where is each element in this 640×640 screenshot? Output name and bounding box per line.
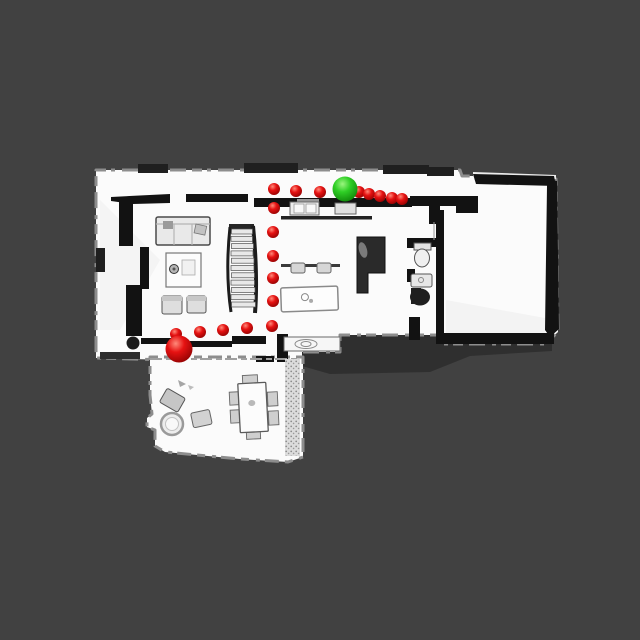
waypoint-marker: [290, 185, 302, 197]
stair-tread: [232, 229, 253, 234]
scene-viewport[interactable]: [0, 0, 640, 640]
scan-noise: [100, 352, 140, 359]
waypoint-marker: [241, 322, 253, 334]
scan-noise: [244, 163, 298, 173]
sink-basin: [306, 204, 316, 213]
scan-speckle-band: [285, 359, 300, 456]
wall-segment: [436, 210, 444, 335]
chair-back: [162, 296, 182, 301]
stair-tread: [232, 302, 256, 307]
round-rug-inner: [166, 418, 179, 431]
waypoint-marker: [374, 190, 386, 202]
kitchen-island: [281, 286, 339, 312]
dining-chair: [230, 410, 240, 423]
waypoint-marker: [217, 324, 229, 336]
scan-noise: [96, 248, 105, 272]
wall-post: [127, 337, 140, 350]
dining-chair: [229, 392, 239, 405]
waypoint-marker: [314, 186, 326, 198]
waypoint-marker: [267, 272, 279, 284]
waypoint-marker: [268, 202, 280, 214]
stool: [317, 263, 331, 273]
stairs: [228, 224, 256, 313]
stool: [291, 263, 305, 273]
dining-table: [238, 382, 269, 432]
dining-chair: [268, 411, 279, 426]
stool: [191, 409, 213, 428]
stair-tread: [231, 251, 253, 256]
toilet: [415, 249, 430, 267]
waypoint-marker: [267, 226, 279, 238]
waypoint-marker: [396, 193, 408, 205]
bathroom-shadow: [410, 289, 430, 306]
stair-tread: [231, 295, 255, 300]
stair-treads: [231, 229, 256, 307]
wall-segment: [119, 200, 133, 246]
stair-tread: [232, 244, 254, 249]
table-tray: [182, 260, 195, 275]
sink-basin: [294, 204, 304, 213]
wall-segment: [232, 336, 266, 344]
wall-segment: [545, 179, 559, 337]
cabinet-top: [284, 337, 340, 351]
lower-room-floor: [147, 357, 303, 462]
stove: [335, 203, 356, 214]
stair-tread: [232, 287, 256, 292]
wall-segment: [473, 174, 556, 186]
waypoint-marker: [267, 250, 279, 262]
stair-tread: [231, 266, 254, 271]
bowl-center: [173, 268, 176, 271]
stair-tread: [232, 258, 255, 263]
wall-post: [409, 317, 420, 340]
island-top: [281, 286, 339, 312]
waypoint-marker: [363, 188, 375, 200]
sofa-pillow: [194, 224, 207, 235]
waypoint-marker: [266, 320, 278, 332]
sofa-pillow: [163, 221, 173, 229]
stair-tread: [231, 280, 255, 285]
scan-noise: [427, 167, 454, 176]
scan-noise: [383, 165, 429, 174]
wall-segment: [126, 285, 142, 336]
scene-canvas[interactable]: [0, 0, 640, 640]
waypoint-marker: [267, 295, 279, 307]
chair-back: [187, 296, 206, 301]
stair-tread: [231, 236, 253, 241]
goal-marker: [333, 177, 358, 202]
waypoint-marker: [268, 183, 280, 195]
dining-chair: [267, 392, 278, 407]
wall-segment: [436, 333, 554, 344]
console-cabinet: [284, 337, 340, 351]
waypoint-marker: [194, 326, 206, 338]
wall-segment: [186, 194, 248, 202]
counter-edge: [281, 216, 372, 220]
wall-segment: [456, 201, 478, 213]
stair-tread: [232, 273, 255, 278]
wall-segment: [140, 247, 149, 289]
bathroom-sink: [411, 274, 432, 287]
scan-noise: [138, 164, 168, 173]
wall-segment: [190, 341, 232, 347]
start-marker: [166, 336, 193, 363]
